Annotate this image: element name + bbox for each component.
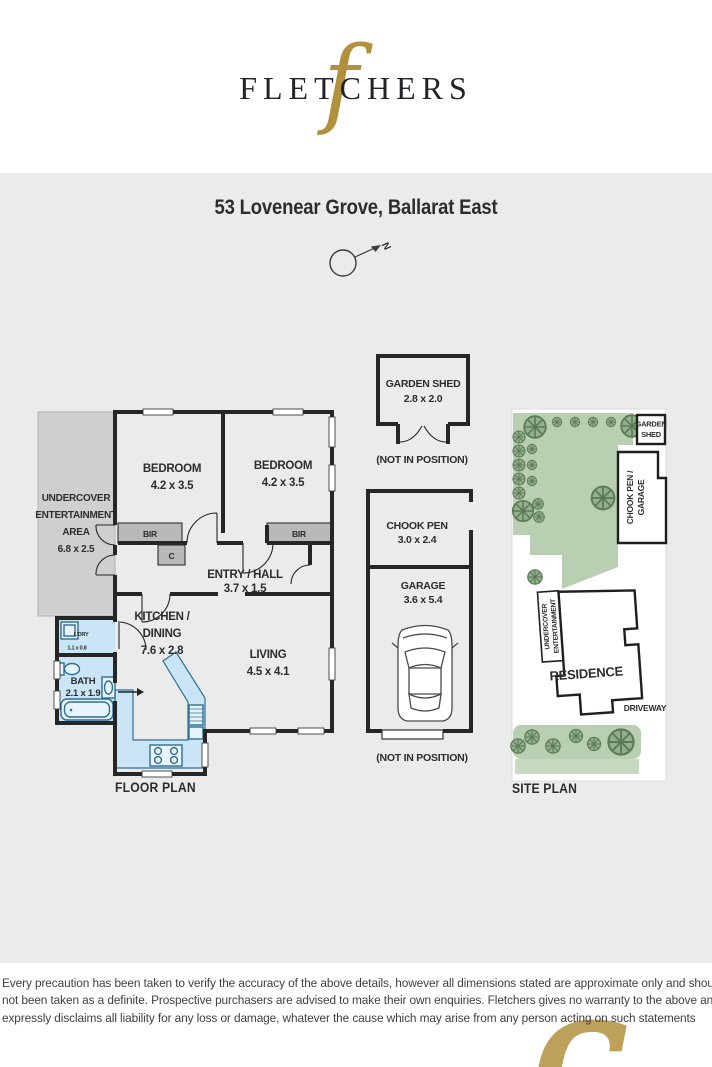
residence-outline: [551, 586, 643, 716]
driveway-label: DRIVEWAY: [624, 703, 667, 713]
header-logo: f FLETCHERS: [0, 0, 712, 173]
garden-shed-note: (NOT IN POSITION): [376, 454, 467, 466]
disclaimer-line-2: not been taken as a definite. Prospectiv…: [2, 992, 709, 1009]
bath-dims: 2.1 x 1.9: [66, 688, 101, 699]
bir1-label: BIR: [143, 529, 157, 539]
stove-cooktop: [150, 745, 182, 766]
garden-strip-front: [515, 759, 639, 774]
disclaimer-line-3: expressly disclaims all liability for an…: [2, 1010, 709, 1027]
north-compass-icon: N: [325, 237, 403, 289]
chook-pen-dims: 3.0 x 2.4: [398, 534, 437, 546]
kitchen-dims: 7.6 x 2.8: [141, 645, 184, 657]
garden-shed-label: GARDEN SHED: [386, 378, 462, 390]
chook-pen-garage-plan: CHOOK PEN 3.0 x 2.4 GARAGE 3.6 x 5.4 (NO…: [360, 480, 486, 780]
garage-note: (NOT IN POSITION): [376, 752, 467, 764]
kitchen-label-2: DINING: [143, 628, 182, 640]
undercover-dims: 6.8 x 2.5: [58, 544, 95, 555]
garage-door: [382, 730, 443, 739]
kitchen-sink-unit: [189, 705, 203, 739]
shed-door-leaf-right: [446, 424, 450, 444]
kitchen-label-1: KITCHEN /: [134, 611, 190, 623]
laundry-label: L'DRY: [74, 632, 89, 638]
logo-wordmark: FLETCHERS: [0, 70, 712, 107]
site-chook-garage-label-2: GARAGE: [636, 479, 646, 515]
laundry-dims: 1.1 x 0.8: [67, 646, 86, 652]
living-label: LIVING: [250, 649, 287, 661]
garage-dims: 3.6 x 5.4: [404, 594, 443, 606]
undercover-label-2: ENTERTAINMENT: [35, 510, 117, 521]
bedroom2-dims: 4.2 x 3.5: [262, 477, 305, 489]
bath-label: BATH: [71, 676, 96, 687]
shed-door-swings: [400, 426, 446, 442]
site-chook-garage-label-1: CHOOK PEN /: [625, 470, 635, 524]
undercover-label-1: UNDERCOVER: [42, 493, 112, 504]
entry-hall-label: ENTRY / HALL: [207, 569, 283, 581]
floorplan-page: f f FLETCHERS 53 Lovenear Grove, Ballara…: [0, 0, 712, 1067]
compass-north-label: N: [379, 240, 393, 253]
bedroom1-label: BEDROOM: [143, 463, 201, 475]
bedroom1-dims: 4.2 x 3.5: [151, 480, 194, 492]
chook-pen-label: CHOOK PEN: [386, 520, 447, 532]
disclaimer: Every precaution has been taken to verif…: [2, 975, 709, 1027]
site-plan-caption: SITE PLAN: [512, 781, 577, 796]
floor-plan-caption: FLOOR PLAN: [115, 780, 196, 795]
page-title: 53 Lovenear Grove, Ballarat East: [43, 196, 670, 220]
closet-label: C: [169, 551, 175, 561]
site-garden-shed-label-1: GARDEN: [635, 420, 666, 429]
undercover-label-3: AREA: [62, 527, 89, 538]
living-dims: 4.5 x 4.1: [247, 666, 290, 678]
bir2-label: BIR: [292, 529, 306, 539]
toilet: [59, 663, 80, 675]
garden-shed-plan: GARDEN SHED 2.8 x 2.0 (NOT IN POSITION): [360, 350, 486, 470]
garden-shed-dims: 2.8 x 2.0: [404, 393, 443, 405]
entry-hall-dims: 3.7 x 1.5: [224, 583, 267, 595]
bedroom2-label: BEDROOM: [254, 460, 312, 472]
bathtub: [61, 699, 113, 720]
floor-plan: UNDERCOVER ENTERTAINMENT AREA 6.8 x 2.5 …: [30, 393, 360, 805]
garden-shed-walls: [378, 356, 468, 424]
site-plan: GARDEN SHED CHOOK PEN / GARAGE UNDERCOVE…: [505, 405, 675, 805]
car-icon: [392, 626, 458, 722]
site-garden-shed-label-2: SHED: [641, 430, 662, 439]
compass-circle: [330, 250, 356, 276]
shed-door-leaf-left: [396, 424, 400, 444]
garage-label: GARAGE: [401, 580, 446, 592]
disclaimer-line-1: Every precaution has been taken to verif…: [2, 975, 709, 992]
